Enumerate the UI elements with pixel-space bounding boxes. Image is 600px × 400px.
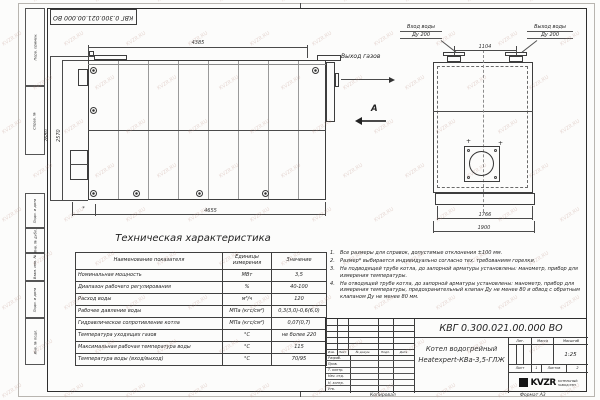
inlet-nozzle-neck — [447, 56, 461, 62]
gas-outlet-label: Выход газов — [341, 53, 380, 60]
dim-ext — [88, 45, 89, 60]
side-dim-bottom: 4655 — [95, 208, 326, 214]
lit-label: Лит. — [509, 338, 531, 345]
sheets-value: 2 — [566, 364, 588, 372]
side-view-mid-seam — [88, 130, 326, 131]
dim-line — [454, 50, 516, 51]
spec-row: Номинальная мощностьМВт3,5 — [76, 270, 327, 282]
spec-header-row: Наименование показателя Единицы измерени… — [76, 253, 327, 270]
doc-number-flipped-box: КВГ 0.300.021.00.000 ВО — [50, 9, 137, 25]
drawing-sheet: КВГ 0.300.021.00.000 ВО Перв. примен. Сп… — [0, 0, 600, 400]
bolt-icon — [262, 190, 269, 197]
dim-line — [50, 56, 51, 200]
dim-line — [72, 214, 326, 215]
doc-number-flipped: КВГ 0.300.021.00.000 ВО — [53, 14, 133, 21]
spec-row: Температура воды (вход/выход)°С70/95 — [76, 354, 327, 366]
front-dim-base: 1900 — [433, 225, 535, 231]
gas-outlet-arrow-line — [341, 79, 389, 80]
dim-line — [433, 231, 535, 232]
spec-table: Наименование показателя Единицы измерени… — [75, 252, 327, 366]
side-dim-top: 4385 — [88, 40, 308, 46]
title-block: Изм. Лист № докум. Подп. Дата Разраб. Пр… — [325, 318, 587, 392]
dim-ext — [307, 45, 308, 58]
bolt-icon — [312, 67, 319, 74]
cross-mark: + — [498, 140, 503, 147]
boiler-base — [435, 193, 535, 205]
side-dim-height-outer: 2680 — [44, 129, 50, 142]
spec-col-units: Единицы измерения — [223, 253, 272, 270]
copied-label: Копировал — [370, 393, 396, 398]
doc-number: КВГ 0.300.021.00.000 ВО — [414, 319, 588, 338]
margin-stamp-podp-data-1: Подп. и дата — [25, 193, 45, 228]
spec-title: Техническая характеристика — [75, 233, 311, 244]
note-item: Все размеры для справок, допустимые откл… — [330, 250, 582, 257]
margin-stamp-sprav: Справ. № — [25, 86, 45, 155]
spec-col-value: Значение — [272, 253, 327, 270]
burner-bracket — [70, 150, 88, 180]
bolt-icon — [467, 149, 470, 152]
dim-line — [62, 60, 63, 200]
product-name-cell: Котел водогрейный Heatexpert-КВа-3,5-ГЛЖ — [415, 338, 509, 393]
view-a-label: А — [371, 104, 378, 114]
water-inlet-callout: Вход воды Ду 200 — [400, 24, 442, 39]
scale-label: Масштаб — [553, 338, 588, 345]
scale-value: 1:25 — [553, 345, 588, 364]
bolt-icon — [90, 67, 97, 74]
dim-line — [437, 218, 533, 219]
note-item: Размер* выбирается индивидуально согласн… — [330, 258, 582, 265]
dim-ext — [516, 46, 517, 55]
gas-duct-cap — [317, 55, 341, 61]
spec-col-name: Наименование показателя — [76, 253, 223, 270]
arrow-right-icon — [389, 77, 395, 83]
bolt-icon — [494, 176, 497, 179]
product-name-line1: Котел водогрейный — [415, 344, 508, 355]
spec-row: Расход водым³/ч120 — [76, 294, 327, 306]
dim-ext — [50, 56, 94, 57]
logo-sub2: ЗАВОД РЭП — [558, 383, 578, 387]
gas-duct-flange — [335, 73, 339, 87]
spec-row: Диапазон рабочего регулирования%40-100 — [76, 282, 327, 294]
gas-duct — [326, 62, 335, 122]
dim-ext — [62, 60, 88, 61]
bolt-icon — [90, 107, 97, 114]
sheet-value: 1 — [531, 364, 541, 372]
logo-mark-icon — [519, 378, 528, 387]
water-outlet-callout: Выход воды Ду 200 — [527, 24, 573, 39]
front-dim-nozzles: 1104 — [454, 44, 516, 50]
burner-opening — [469, 151, 494, 176]
outlet-nozzle-neck — [509, 56, 523, 62]
sheet-label: Лист — [509, 364, 531, 372]
margin-stamp-inv-podl: Инв. № подл. — [25, 318, 45, 365]
zone-tick-bottom — [300, 392, 301, 397]
spec-row: Гидравлическое сопротивление котлаМПа (к… — [76, 318, 327, 330]
margin-stamp-vzam-inv: Взам. инв. № — [25, 253, 45, 281]
bolt-icon — [467, 176, 470, 179]
zone-tick-top — [300, 3, 301, 8]
margin-stamp-podp-data-2: Подп. и дата — [25, 281, 45, 318]
logo-text: KVZR — [530, 378, 555, 388]
margin-stamp-perv-primen: Перв. примен. — [25, 8, 45, 86]
side-view-top-seam — [88, 64, 326, 65]
format-label: Формат А3 — [520, 393, 546, 398]
front-dim-body: 1766 — [437, 212, 533, 218]
view-a-arrow-line — [361, 120, 386, 122]
margin-stamp-inv-dubl: Инв. № дубл. — [25, 228, 45, 253]
arrow-left-icon — [355, 117, 362, 125]
sheets-label: Листов — [541, 364, 566, 372]
dim-ext — [50, 200, 88, 201]
bolt-icon — [494, 149, 497, 152]
side-view-top-hatch — [94, 55, 127, 60]
front-view-centerline — [483, 50, 484, 212]
note-item: На подводящей трубе котла, до запорной а… — [330, 266, 582, 279]
notes-list: Все размеры для справок, допустимые откл… — [330, 250, 582, 302]
bolt-icon — [90, 190, 97, 197]
bolt-icon — [133, 190, 140, 197]
spec-row: Рабочее давление водыМПа (кгс/см²)0,3(3,… — [76, 306, 327, 318]
dim-line — [88, 47, 308, 48]
product-name-line2: Heatexpert-КВа-3,5-ГЛЖ — [415, 355, 508, 366]
side-dim-star: * — [72, 206, 95, 212]
burner-bracket-line — [70, 164, 88, 165]
spec-row: Температура уходящих газов°Сне более 220 — [76, 330, 327, 342]
spec-row: Максимальная рабочая температура воды°С1… — [76, 342, 327, 354]
mass-label: Масса — [531, 338, 553, 345]
side-left-flange — [78, 69, 88, 86]
bolt-icon — [196, 190, 203, 197]
company-logo: KVZR КОТЕЛЬНЫЙ ЗАВОД РЭП — [509, 372, 588, 393]
note-item: На отводящей трубе котла, до запорной ар… — [330, 281, 582, 301]
side-dim-height-inner: 2570 — [56, 129, 62, 142]
role-row: Утв. — [326, 387, 414, 393]
cross-mark: + — [466, 138, 471, 145]
